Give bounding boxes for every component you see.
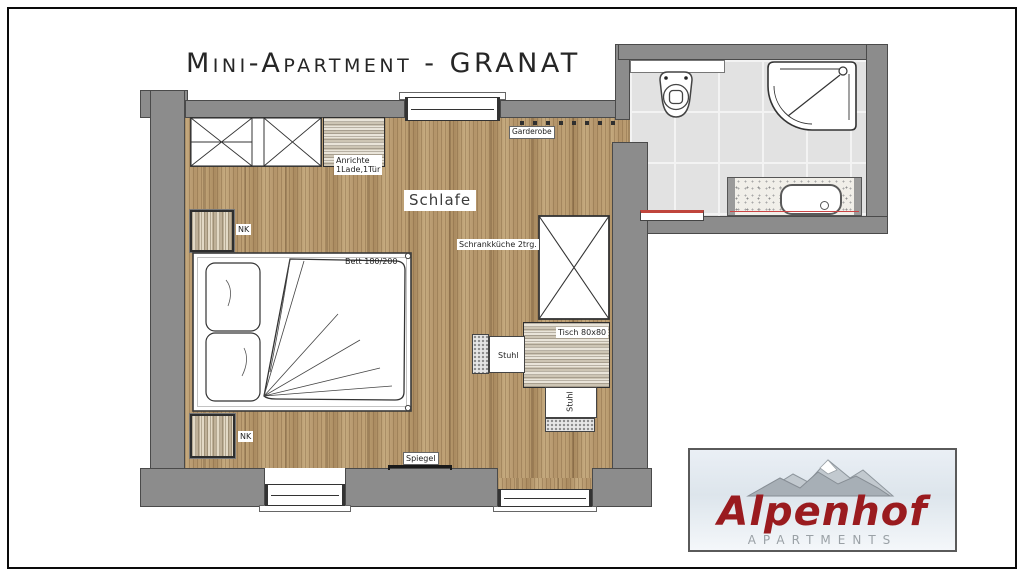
mirror bbox=[388, 465, 452, 470]
label-bett: Bett 180/200 bbox=[343, 256, 399, 267]
wall-bottom-left-block bbox=[140, 468, 265, 507]
label-spiegel: Spiegel bbox=[403, 452, 439, 465]
toilet bbox=[654, 68, 698, 120]
wall-bathroom-top bbox=[618, 44, 888, 60]
nightstand-top bbox=[190, 210, 234, 252]
wall-bottom-mid bbox=[345, 468, 498, 507]
label-anrichte-line1: Anrichte bbox=[336, 156, 370, 165]
toilet-icon bbox=[654, 68, 698, 120]
shower bbox=[766, 60, 858, 132]
logo-box: Alpenhof APARTMENTS bbox=[688, 448, 957, 552]
bed-drawing bbox=[192, 252, 412, 412]
label-anrichte: Anrichte 1Lade,1Tür bbox=[334, 155, 382, 175]
page-title: Mini-Apartment - GRANAT bbox=[186, 48, 581, 79]
wall-divider bbox=[612, 142, 648, 478]
nightstand-bottom bbox=[190, 414, 235, 458]
floor-plan-page: Mini-Apartment - GRANAT bbox=[0, 0, 1024, 576]
window-top bbox=[405, 97, 500, 121]
label-stuhl-bottom: Stuhl bbox=[565, 389, 576, 414]
wall-bathroom-right bbox=[866, 44, 888, 234]
wall-left bbox=[150, 90, 185, 507]
wall-top-a bbox=[185, 100, 405, 118]
label-schrankkueche: Schrankküche 2trg. bbox=[457, 239, 539, 250]
label-garderobe: Garderobe bbox=[509, 126, 555, 139]
logo-name: Alpenhof bbox=[690, 492, 955, 532]
wardrobe bbox=[190, 117, 322, 167]
chair-bottom-backrest bbox=[545, 418, 595, 432]
label-stuhl-left: Stuhl bbox=[496, 350, 521, 361]
label-nk-top: NK bbox=[236, 224, 251, 235]
washbasin-counter bbox=[727, 177, 862, 216]
wall-top-b bbox=[500, 100, 630, 118]
chair-left-backrest bbox=[472, 334, 489, 374]
bed bbox=[192, 252, 412, 412]
window-bottom-left bbox=[265, 484, 345, 506]
wall-bottom-right-pillar bbox=[592, 468, 652, 507]
radiator bbox=[640, 210, 704, 221]
logo-subtitle: APARTMENTS bbox=[690, 533, 955, 547]
shower-icon bbox=[766, 60, 858, 132]
coat-rack bbox=[520, 121, 616, 125]
cabinet-cross-icon bbox=[538, 215, 610, 320]
wardrobe-cross-icon bbox=[190, 117, 322, 167]
window-bottom-left-sill bbox=[259, 505, 351, 512]
label-anrichte-line2: 1Lade,1Tür bbox=[336, 165, 380, 174]
window-bottom-right bbox=[498, 489, 592, 507]
label-room-schlafe: Schlafe bbox=[404, 190, 476, 211]
label-nk-bottom: NK bbox=[238, 431, 253, 442]
sink-drain-icon bbox=[820, 201, 829, 210]
kitchen-cabinet-schrankkueche bbox=[538, 215, 610, 320]
sink-basin bbox=[780, 184, 842, 215]
label-tisch: Tisch 80x80 bbox=[556, 327, 608, 338]
